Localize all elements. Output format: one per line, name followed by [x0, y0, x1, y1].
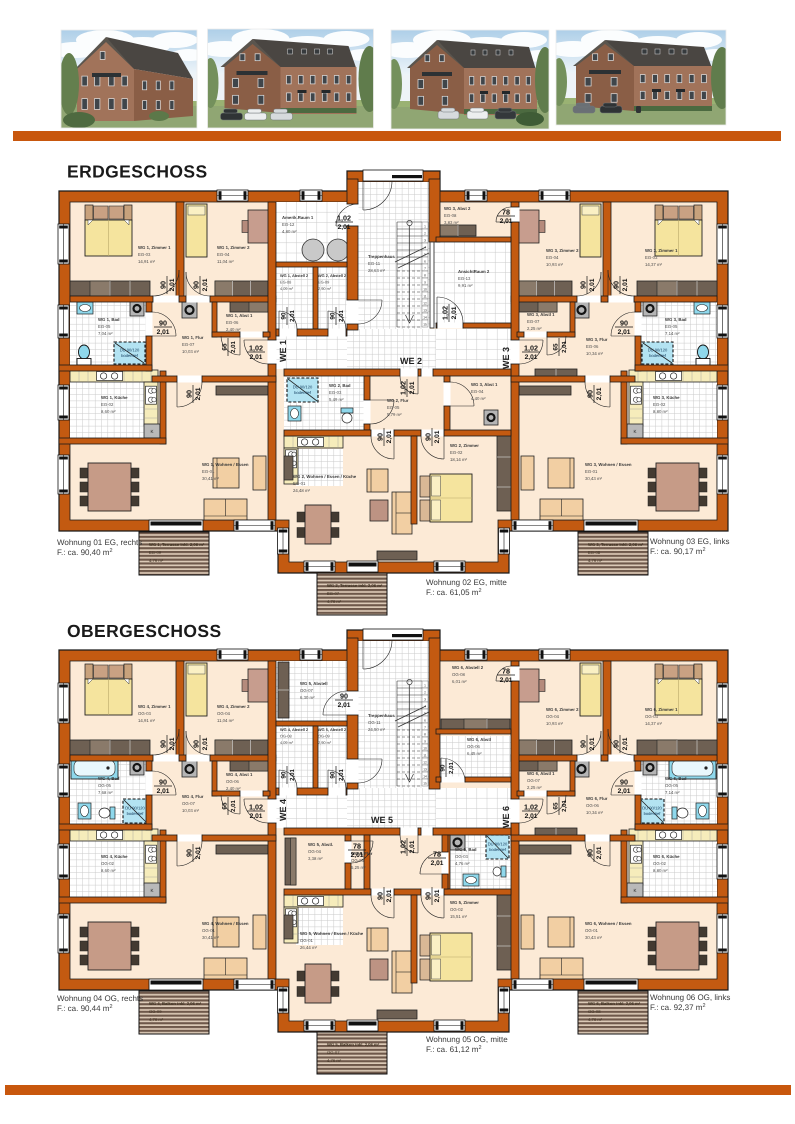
- svg-text:5,49 m²: 5,49 m²: [329, 397, 344, 402]
- svg-text:3,38 m²: 3,38 m²: [308, 856, 323, 861]
- svg-text:90: 90: [185, 390, 194, 398]
- svg-text:30,43 m²: 30,43 m²: [585, 935, 603, 940]
- svg-text:90: 90: [281, 771, 288, 779]
- svg-text:90: 90: [330, 312, 337, 320]
- svg-text:2,01: 2,01: [561, 341, 568, 353]
- svg-text:6,45 m²: 6,45 m²: [467, 751, 482, 756]
- svg-text:2,01: 2,01: [289, 310, 296, 322]
- svg-text:12: 12: [423, 301, 427, 305]
- svg-text:8: 8: [424, 732, 426, 736]
- svg-text:bodentief: bodentief: [649, 353, 667, 358]
- svg-text:90: 90: [586, 390, 595, 398]
- svg-text:2,01: 2,01: [434, 430, 441, 443]
- svg-text:11: 11: [423, 753, 427, 757]
- svg-text:bodentief: bodentief: [127, 811, 145, 816]
- svg-text:2,01: 2,01: [596, 387, 603, 400]
- svg-text:4,76 m²: 4,76 m²: [327, 1058, 342, 1063]
- svg-text:WG 3, Abstl 1: WG 3, Abstl 1: [527, 312, 555, 317]
- svg-text:1,02: 1,02: [249, 803, 263, 812]
- svg-text:2,01: 2,01: [230, 800, 237, 812]
- svg-text:30,43 m²: 30,43 m²: [585, 476, 603, 481]
- svg-text:WG 5, Bad: WG 5, Bad: [455, 847, 477, 852]
- svg-text:2,01: 2,01: [195, 846, 202, 859]
- svg-text:4,76 m²: 4,76 m²: [149, 558, 164, 563]
- svg-text:EG-03: EG-03: [138, 252, 151, 257]
- svg-text:26,44 m²: 26,44 m²: [300, 945, 318, 950]
- svg-text:WG 2, Bad: WG 2, Bad: [329, 383, 351, 388]
- svg-text:F.: ca. 90,40 m2: F.: ca. 90,40 m2: [57, 548, 113, 557]
- svg-text:90: 90: [159, 740, 168, 748]
- svg-text:WG 4, Bad: WG 4, Bad: [98, 776, 120, 781]
- svg-text:OG-03: OG-03: [138, 711, 152, 716]
- svg-text:WG 5, Abstell: WG 5, Abstell: [300, 681, 328, 686]
- svg-text:AnsichtRaum 2: AnsichtRaum 2: [458, 269, 490, 274]
- svg-text:11: 11: [423, 294, 427, 298]
- svg-text:14,91 m²: 14,91 m²: [138, 259, 156, 264]
- svg-text:WE 6: WE 6: [501, 806, 511, 828]
- svg-text:4,76 m²: 4,76 m²: [588, 1017, 603, 1022]
- svg-text:WG 2, Terrasse inkl. 2,06 m²: WG 2, Terrasse inkl. 2,06 m²: [327, 583, 383, 588]
- svg-text:15,51 m²: 15,51 m²: [450, 914, 468, 919]
- svg-text:OG-11: OG-11: [368, 720, 381, 725]
- svg-text:WG 4, Zimmer 2: WG 4, Zimmer 2: [217, 704, 250, 709]
- svg-text:WG 3, Abst 2: WG 3, Abst 2: [444, 206, 471, 211]
- svg-text:2,01: 2,01: [250, 354, 263, 361]
- svg-text:2,01: 2,01: [431, 860, 444, 867]
- svg-text:WG 6, Küche: WG 6, Küche: [653, 854, 680, 859]
- svg-text:WG 6, Wohnen / Essen: WG 6, Wohnen / Essen: [585, 921, 632, 926]
- svg-text:78: 78: [353, 842, 361, 851]
- svg-text:1,02: 1,02: [441, 306, 450, 320]
- svg-text:2,01: 2,01: [618, 329, 631, 336]
- svg-text:10,34 m²: 10,34 m²: [586, 810, 604, 815]
- svg-text:WG 4, Zimmer 1: WG 4, Zimmer 1: [138, 704, 171, 709]
- svg-text:EG-04: EG-04: [217, 252, 230, 257]
- svg-text:WG 3, Zimmer 1: WG 3, Zimmer 1: [645, 248, 678, 253]
- svg-text:4,76 m²: 4,76 m²: [588, 558, 603, 563]
- svg-text:WG 3, Abst 1: WG 3, Abst 1: [471, 382, 498, 387]
- svg-text:8: 8: [424, 273, 426, 277]
- svg-text:WG 5, Balkon inkl. 2,06 m²: WG 5, Balkon inkl. 2,06 m²: [327, 1042, 380, 1047]
- svg-text:90: 90: [376, 433, 385, 441]
- svg-text:WG 4, Balkon inkl. 2,06 m²: WG 4, Balkon inkl. 2,06 m²: [149, 1001, 202, 1006]
- svg-text:EG-01: EG-01: [202, 469, 215, 474]
- svg-text:15: 15: [423, 781, 427, 785]
- svg-text:WG 4, Küche: WG 4, Küche: [101, 854, 128, 859]
- svg-text:WG 6, Flur: WG 6, Flur: [586, 796, 608, 801]
- svg-text:4,76 m²: 4,76 m²: [149, 1017, 164, 1022]
- svg-text:OG-07: OG-07: [327, 1050, 340, 1055]
- svg-text:4,80 m²: 4,80 m²: [282, 229, 297, 234]
- svg-text:OG-07: OG-07: [527, 778, 541, 783]
- svg-text:OG-09: OG-09: [318, 733, 330, 738]
- svg-text:6: 6: [424, 259, 426, 263]
- svg-text:9: 9: [424, 280, 426, 284]
- svg-text:7,68 m²: 7,68 m²: [98, 790, 113, 795]
- svg-text:4,76 m²: 4,76 m²: [455, 861, 470, 866]
- svg-text:OG-06: OG-06: [586, 803, 600, 808]
- svg-text:8,60 m²: 8,60 m²: [101, 868, 116, 873]
- svg-text:1: 1: [424, 224, 426, 228]
- svg-text:2,01: 2,01: [169, 278, 176, 291]
- svg-text:2: 2: [424, 231, 426, 235]
- svg-text:WG 3, Bad: WG 3, Bad: [665, 317, 687, 322]
- svg-text:EG-05: EG-05: [665, 324, 678, 329]
- svg-text:7,14 m²: 7,14 m²: [665, 331, 680, 336]
- svg-text:EG-07: EG-07: [327, 591, 340, 596]
- svg-text:3: 3: [424, 238, 426, 242]
- svg-text:WG 6, Abstell 2: WG 6, Abstell 2: [452, 665, 484, 670]
- svg-text:EG-05: EG-05: [98, 324, 111, 329]
- svg-text:2,01: 2,01: [157, 329, 170, 336]
- svg-text:WG 6, Abstl 1: WG 6, Abstl 1: [527, 771, 555, 776]
- svg-text:14: 14: [423, 774, 427, 778]
- svg-text:2,01: 2,01: [618, 788, 631, 795]
- svg-text:WE 5: WE 5: [371, 815, 393, 825]
- svg-text:OG-04: OG-04: [546, 714, 560, 719]
- svg-text:OG-07: OG-07: [300, 688, 314, 693]
- svg-text:30,41 m²: 30,41 m²: [202, 476, 220, 481]
- svg-text:1,02: 1,02: [399, 840, 408, 854]
- svg-text:2,01: 2,01: [338, 769, 345, 781]
- svg-text:WG 1, Zimmer 2: WG 1, Zimmer 2: [217, 245, 250, 250]
- svg-text:90: 90: [620, 319, 628, 328]
- svg-text:90: 90: [192, 281, 201, 289]
- svg-text:65: 65: [222, 343, 229, 351]
- svg-text:8,80 m²: 8,80 m²: [653, 868, 668, 873]
- svg-text:EG-07: EG-07: [527, 319, 540, 324]
- svg-text:OG-06: OG-06: [467, 744, 481, 749]
- svg-text:7: 7: [424, 266, 426, 270]
- svg-text:2,01: 2,01: [525, 354, 538, 361]
- svg-text:bodentief: bodentief: [294, 390, 312, 395]
- svg-text:7,04 m²: 7,04 m²: [98, 331, 113, 336]
- svg-text:2,01: 2,01: [409, 381, 416, 394]
- svg-text:EG-02: EG-02: [450, 450, 463, 455]
- svg-text:EG-04: EG-04: [546, 255, 559, 260]
- svg-text:10: 10: [423, 746, 427, 750]
- svg-text:65: 65: [222, 802, 229, 810]
- svg-text:78: 78: [433, 850, 441, 859]
- svg-text:WG 3, Wohnen / Essen: WG 3, Wohnen / Essen: [585, 462, 632, 467]
- svg-text:EG-09: EG-09: [318, 279, 329, 284]
- svg-text:2,01: 2,01: [338, 702, 351, 709]
- svg-text:WG 4, Wohnen / Essen: WG 4, Wohnen / Essen: [202, 921, 249, 926]
- svg-text:30,41 m²: 30,41 m²: [202, 935, 220, 940]
- svg-text:OG-01: OG-01: [300, 938, 314, 943]
- svg-text:WE 4: WE 4: [278, 799, 288, 821]
- svg-text:14,37 m²: 14,37 m²: [645, 262, 663, 267]
- svg-text:2,01: 2,01: [525, 813, 538, 820]
- svg-text:Wohnung 05 OG, mitte: Wohnung 05 OG, mitte: [426, 1035, 508, 1044]
- svg-text:2,01: 2,01: [230, 341, 237, 353]
- svg-text:DU 90/120: DU 90/120: [120, 348, 140, 353]
- svg-text:28,63 m²: 28,63 m²: [368, 268, 386, 273]
- svg-text:OG-05: OG-05: [665, 783, 679, 788]
- svg-text:OG-02: OG-02: [653, 861, 667, 866]
- svg-text:10,03 m²: 10,03 m²: [182, 349, 200, 354]
- svg-text:EG-07: EG-07: [182, 342, 195, 347]
- svg-text:Treppenhaus: Treppenhaus: [368, 713, 395, 718]
- svg-text:2,25 m²: 2,25 m²: [527, 785, 542, 790]
- svg-text:6,25 m²: 6,25 m²: [351, 865, 366, 870]
- svg-text:2,01: 2,01: [448, 762, 455, 774]
- svg-text:Amerik.Raum 1: Amerik.Raum 1: [282, 215, 314, 220]
- svg-text:9,91 m²: 9,91 m²: [458, 283, 473, 288]
- svg-text:WG 5, Zimmer: WG 5, Zimmer: [450, 900, 479, 905]
- svg-text:14,91 m²: 14,91 m²: [138, 718, 156, 723]
- svg-text:90: 90: [424, 433, 433, 441]
- svg-text:90: 90: [620, 778, 628, 787]
- svg-text:3,83 m²: 3,83 m²: [444, 220, 459, 225]
- svg-text:WE 1: WE 1: [278, 340, 288, 362]
- svg-text:OG-04: OG-04: [217, 711, 231, 716]
- svg-text:OG-03: OG-03: [645, 714, 659, 719]
- svg-text:2,01: 2,01: [409, 840, 416, 853]
- svg-text:F.: ca. 61,12 m2: F.: ca. 61,12 m2: [426, 1045, 482, 1054]
- svg-text:EG-08: EG-08: [588, 550, 601, 555]
- svg-text:EG-02: EG-02: [653, 402, 666, 407]
- svg-text:6: 6: [424, 718, 426, 722]
- svg-text:90: 90: [612, 281, 621, 289]
- svg-text:2,01: 2,01: [451, 306, 458, 319]
- svg-text:7: 7: [424, 725, 426, 729]
- svg-text:90: 90: [612, 740, 621, 748]
- svg-text:6,01 m²: 6,01 m²: [452, 679, 467, 684]
- svg-text:90: 90: [159, 319, 167, 328]
- svg-text:ERDGESCHOSS: ERDGESCHOSS: [67, 162, 208, 182]
- svg-text:2,90 m²: 2,90 m²: [318, 740, 332, 745]
- svg-text:WG 5, Wohnen / Essen / Küche: WG 5, Wohnen / Essen / Küche: [300, 931, 364, 936]
- svg-text:EG-06: EG-06: [586, 344, 599, 349]
- svg-text:WG 5, Abstl.: WG 5, Abstl.: [308, 842, 333, 847]
- svg-text:2,01: 2,01: [434, 889, 441, 902]
- svg-text:4,76 m²: 4,76 m²: [327, 599, 342, 604]
- svg-text:1: 1: [424, 683, 426, 687]
- svg-text:WG 1, Zimmer 1: WG 1, Zimmer 1: [138, 245, 171, 250]
- svg-text:K: K: [150, 429, 153, 434]
- svg-text:WG 6, Bad: WG 6, Bad: [665, 776, 687, 781]
- svg-text:OG-08: OG-08: [280, 733, 292, 738]
- svg-text:OG-05: OG-05: [98, 783, 112, 788]
- svg-text:11,04 m²: 11,04 m²: [217, 259, 234, 264]
- svg-text:EG-13: EG-13: [458, 276, 471, 281]
- svg-text:2,01: 2,01: [561, 800, 568, 812]
- svg-text:F.: ca. 92,37 m2: F.: ca. 92,37 m2: [650, 1003, 706, 1012]
- svg-text:OG-07: OG-07: [182, 801, 196, 806]
- svg-text:11,04 m²: 11,04 m²: [217, 718, 234, 723]
- svg-text:78: 78: [502, 208, 510, 217]
- svg-text:7,14 m²: 7,14 m²: [665, 790, 680, 795]
- svg-text:EG-08: EG-08: [280, 279, 291, 284]
- svg-text:2,01: 2,01: [202, 278, 209, 291]
- svg-text:18,14 m²: 18,14 m²: [450, 457, 468, 462]
- svg-text:F.: ca. 90,44 m2: F.: ca. 90,44 m2: [57, 1004, 113, 1013]
- svg-text:8,60 m²: 8,60 m²: [101, 409, 116, 414]
- svg-text:WG 1, Bad: WG 1, Bad: [98, 317, 120, 322]
- svg-text:OG-02: OG-02: [101, 861, 115, 866]
- svg-text:12: 12: [423, 760, 427, 764]
- svg-text:DU 90/120: DU 90/120: [125, 806, 145, 811]
- svg-text:WG 6, Abstl: WG 6, Abstl: [467, 737, 491, 742]
- svg-text:10,93 m²: 10,93 m²: [546, 262, 564, 267]
- svg-text:78: 78: [502, 667, 510, 676]
- svg-text:WG 3, Terrasse inkl. 2,06 m²: WG 3, Terrasse inkl. 2,06 m²: [588, 542, 644, 547]
- svg-text:2,01: 2,01: [386, 889, 393, 902]
- svg-text:WG 6, Zimmer 2: WG 6, Zimmer 2: [546, 707, 579, 712]
- svg-text:WG 4, Flur: WG 4, Flur: [182, 794, 204, 799]
- svg-text:14: 14: [423, 315, 427, 319]
- svg-text:2,01: 2,01: [589, 278, 596, 291]
- svg-text:WG 1, Abst 1: WG 1, Abst 1: [226, 313, 253, 318]
- svg-text:EG-12: EG-12: [282, 222, 295, 227]
- svg-text:10,03 m²: 10,03 m²: [182, 808, 200, 813]
- svg-text:K: K: [150, 888, 153, 893]
- svg-text:14,37 m²: 14,37 m²: [645, 721, 663, 726]
- svg-text:15: 15: [423, 322, 427, 326]
- svg-text:2,01: 2,01: [589, 737, 596, 750]
- svg-text:EG-05: EG-05: [387, 405, 400, 410]
- svg-text:WG 1, Wohnen / Essen: WG 1, Wohnen / Essen: [202, 462, 249, 467]
- svg-text:WG 6, Balkon inkl. 2,06 m²: WG 6, Balkon inkl. 2,06 m²: [588, 1001, 641, 1006]
- svg-text:2,90 m²: 2,90 m²: [318, 286, 332, 291]
- svg-text:6,30 m²: 6,30 m²: [300, 695, 315, 700]
- svg-text:1,02: 1,02: [399, 381, 408, 395]
- svg-text:WG 1, Flur: WG 1, Flur: [182, 335, 204, 340]
- svg-text:90: 90: [185, 849, 194, 857]
- svg-text:2,01: 2,01: [338, 224, 351, 231]
- svg-text:2,01: 2,01: [622, 737, 629, 750]
- svg-text:DU 90/120: DU 90/120: [293, 385, 313, 390]
- svg-text:EG-04: EG-04: [471, 389, 484, 394]
- svg-text:EG-09: EG-09: [149, 550, 162, 555]
- svg-text:24,50 m²: 24,50 m²: [368, 727, 386, 732]
- svg-text:2: 2: [424, 690, 426, 694]
- svg-text:WG 2, Flur: WG 2, Flur: [387, 398, 409, 403]
- svg-text:WG 6, Zimmer 1: WG 6, Zimmer 1: [645, 707, 678, 712]
- svg-text:Wohnung 01 EG, rechts: Wohnung 01 EG, rechts: [57, 538, 142, 547]
- svg-text:13: 13: [423, 308, 427, 312]
- svg-text:90: 90: [579, 740, 588, 748]
- svg-text:65: 65: [553, 343, 560, 351]
- svg-text:2,01: 2,01: [596, 846, 603, 859]
- svg-text:OG-02: OG-02: [450, 907, 464, 912]
- svg-text:K: K: [633, 429, 636, 434]
- svg-text:2,01: 2,01: [386, 430, 393, 443]
- svg-text:EG-06: EG-06: [226, 320, 239, 325]
- svg-text:EG-01: EG-01: [585, 469, 598, 474]
- svg-text:90: 90: [579, 281, 588, 289]
- svg-text:2,01: 2,01: [289, 769, 296, 781]
- svg-text:OBERGESCHOSS: OBERGESCHOSS: [67, 621, 222, 641]
- svg-text:4,09 m²: 4,09 m²: [280, 286, 294, 291]
- svg-text:WG 3, Zimmer 2: WG 3, Zimmer 2: [546, 248, 579, 253]
- svg-text:F.: ca. 61,05 m2: F.: ca. 61,05 m2: [426, 588, 482, 597]
- svg-text:2,40 m²: 2,40 m²: [226, 786, 241, 791]
- svg-text:24,48 m²: 24,48 m²: [293, 488, 311, 493]
- svg-text:bodentief: bodentief: [489, 847, 507, 852]
- svg-text:2,01: 2,01: [622, 278, 629, 291]
- svg-text:Treppenhaus: Treppenhaus: [368, 254, 395, 259]
- svg-text:OG-09: OG-09: [149, 1009, 162, 1014]
- svg-text:2,01: 2,01: [338, 310, 345, 322]
- svg-text:2,01: 2,01: [351, 852, 364, 859]
- svg-text:WG 4, Abst 1: WG 4, Abst 1: [226, 772, 253, 777]
- svg-text:5,79 m²: 5,79 m²: [387, 412, 402, 417]
- svg-text:1,02: 1,02: [249, 344, 263, 353]
- svg-text:EG-01: EG-01: [293, 481, 306, 486]
- svg-text:OG-01: OG-01: [202, 928, 216, 933]
- svg-text:4,40 m²: 4,40 m²: [471, 396, 486, 401]
- svg-text:13: 13: [423, 767, 427, 771]
- svg-text:EG-03: EG-03: [329, 390, 342, 395]
- svg-text:90: 90: [376, 892, 385, 900]
- svg-text:1,02: 1,02: [337, 214, 351, 223]
- svg-text:Wohnung 04 OG, rechts: Wohnung 04 OG, rechts: [57, 994, 143, 1003]
- svg-text:2,01: 2,01: [500, 218, 513, 225]
- svg-text:WG 2, Abstell 2: WG 2, Abstell 2: [318, 273, 347, 278]
- svg-text:WG 5, Abstell 2: WG 5, Abstell 2: [318, 727, 347, 732]
- svg-text:90: 90: [330, 771, 337, 779]
- svg-text:2,40 m²: 2,40 m²: [226, 327, 241, 332]
- svg-text:DU 90/120: DU 90/120: [488, 842, 508, 847]
- svg-text:4,09 m²: 4,09 m²: [280, 740, 294, 745]
- svg-text:WG 1, Terrasse inkl. 2,06 m²: WG 1, Terrasse inkl. 2,06 m²: [149, 542, 205, 547]
- svg-text:2,01: 2,01: [500, 677, 513, 684]
- svg-text:EG-02: EG-02: [101, 402, 114, 407]
- svg-text:DU 90/120: DU 90/120: [642, 806, 662, 811]
- svg-text:2,01: 2,01: [157, 788, 170, 795]
- svg-text:WE 2: WE 2: [400, 356, 422, 366]
- svg-text:EG-03: EG-03: [645, 255, 658, 260]
- svg-text:OG-06: OG-06: [226, 779, 240, 784]
- svg-text:OG-04: OG-04: [308, 849, 322, 854]
- svg-text:EG-11: EG-11: [368, 261, 381, 266]
- svg-text:WG 3, Flur: WG 3, Flur: [586, 337, 608, 342]
- svg-text:OG-08: OG-08: [452, 672, 466, 677]
- svg-text:WG 3, Küche: WG 3, Küche: [653, 395, 680, 400]
- svg-text:90: 90: [586, 849, 595, 857]
- svg-text:1,02: 1,02: [524, 803, 538, 812]
- svg-text:OG-01: OG-01: [585, 928, 599, 933]
- svg-text:2,01: 2,01: [169, 737, 176, 750]
- svg-text:EG-08: EG-08: [444, 213, 457, 218]
- svg-text:2,01: 2,01: [202, 737, 209, 750]
- svg-text:WE 3: WE 3: [501, 347, 511, 369]
- svg-text:K: K: [633, 888, 636, 893]
- svg-text:2,01: 2,01: [195, 387, 202, 400]
- svg-text:90: 90: [340, 692, 348, 701]
- svg-text:90: 90: [281, 312, 288, 320]
- svg-text:1,02: 1,02: [524, 344, 538, 353]
- svg-text:Wohnung 03 EG, links: Wohnung 03 EG, links: [650, 537, 729, 546]
- svg-text:10,34 m²: 10,34 m²: [586, 351, 604, 356]
- svg-text:F.: ca. 90,17 m2: F.: ca. 90,17 m2: [650, 547, 706, 556]
- svg-text:DU 90/120: DU 90/120: [648, 348, 668, 353]
- svg-text:90: 90: [159, 778, 167, 787]
- svg-text:OG-03: OG-03: [455, 854, 469, 859]
- svg-text:Wohnung 06 OG, links: Wohnung 06 OG, links: [650, 993, 730, 1002]
- svg-text:WG 1, Küche: WG 1, Küche: [101, 395, 128, 400]
- svg-text:8,80 m²: 8,80 m²: [653, 409, 668, 414]
- svg-text:WG 4, Abstell 2: WG 4, Abstell 2: [280, 727, 309, 732]
- svg-text:65: 65: [553, 802, 560, 810]
- svg-text:90: 90: [192, 740, 201, 748]
- svg-text:WG 1, Abstell 2: WG 1, Abstell 2: [280, 273, 309, 278]
- svg-text:2,01: 2,01: [250, 813, 263, 820]
- svg-text:3: 3: [424, 697, 426, 701]
- svg-text:9: 9: [424, 739, 426, 743]
